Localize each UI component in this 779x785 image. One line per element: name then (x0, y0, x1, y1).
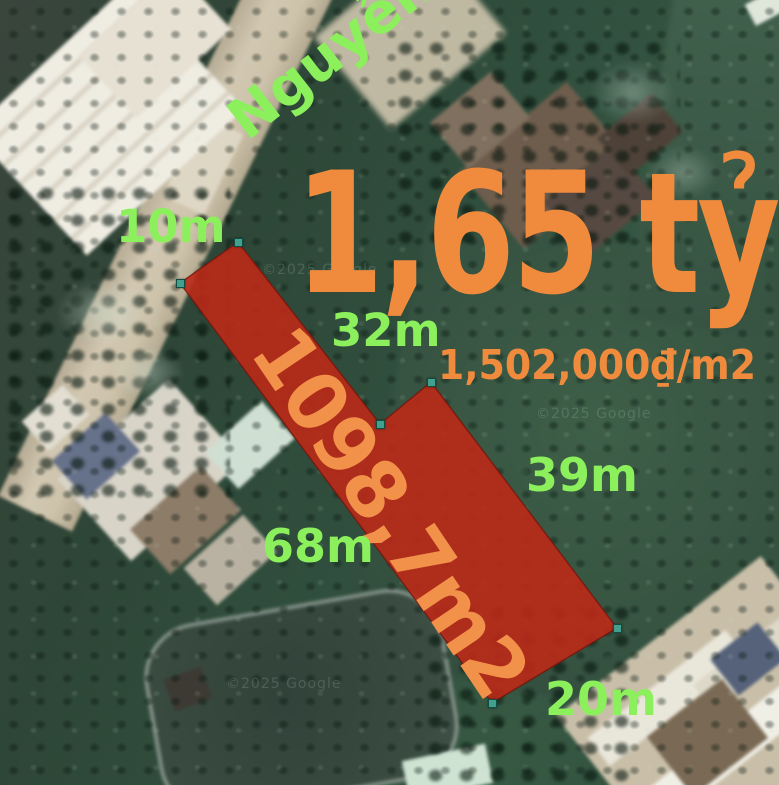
measure-10m-label: 10m (116, 203, 226, 250)
vertex-handle[interactable] (427, 378, 436, 387)
vertex-handle[interactable] (613, 624, 622, 633)
measure-20m-label: 20m (545, 675, 657, 723)
measure-39m-label: 39m (526, 451, 638, 499)
vertex-handle[interactable] (176, 279, 185, 288)
measure-32m-label: 32m (331, 307, 441, 354)
vertex-handle[interactable] (234, 238, 243, 247)
price-total-label: 1,65 tỷ (295, 146, 777, 322)
price-per-m2-label: 1,502,000₫/m2 (438, 344, 756, 387)
measure-68m-label: 68m (262, 522, 374, 570)
plot-overlay (0, 0, 779, 785)
satellite-map[interactable]: ©2025 Google ©2025 Google ©2025 Google N… (0, 0, 779, 785)
